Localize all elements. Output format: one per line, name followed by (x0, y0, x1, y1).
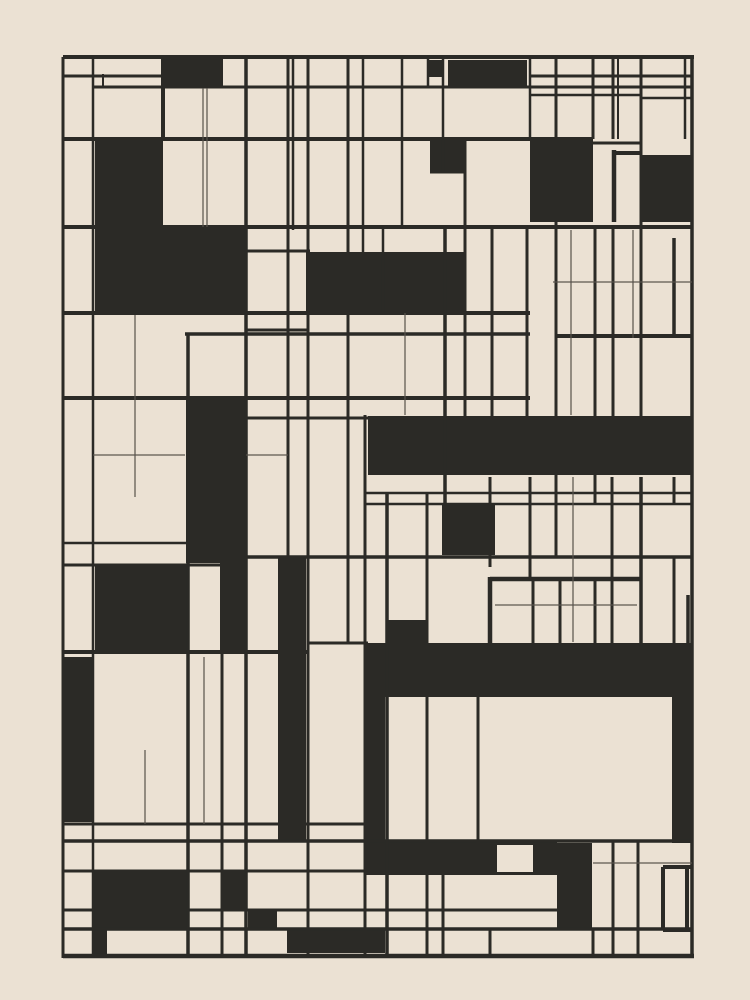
black-mass (557, 843, 592, 929)
grid-hline (614, 151, 641, 155)
grid-vline (529, 57, 532, 139)
grid-vline (529, 477, 532, 577)
thin-vline (632, 230, 633, 338)
grid-vline (592, 57, 595, 139)
thin-hline (93, 454, 185, 455)
grid-vline (673, 557, 676, 647)
grid-vline (442, 57, 445, 172)
black-mass (186, 400, 247, 563)
grid-vline (382, 227, 385, 313)
black-mass (367, 643, 692, 697)
grid-hline (593, 142, 641, 145)
grid-hline (185, 332, 530, 336)
black-mass (95, 565, 187, 652)
grid-vline (102, 74, 104, 88)
grid-hline (63, 870, 497, 873)
grid-hline (63, 75, 163, 78)
grid-vline (686, 595, 690, 647)
grid-vline (690, 57, 694, 958)
grid-hline (246, 555, 692, 559)
grid-vline (186, 333, 190, 955)
grid-vline (307, 57, 310, 955)
grid-vline (488, 577, 493, 647)
grid-hline (63, 909, 557, 912)
black-mass (163, 228, 247, 313)
black-mass (278, 557, 306, 842)
grid-vline (594, 227, 597, 505)
grid-hline (63, 55, 694, 59)
grid-vline (489, 477, 492, 567)
grid-hline (63, 311, 530, 315)
grid-vline (639, 477, 643, 647)
grid-hline (63, 927, 692, 931)
thin-vline (404, 313, 405, 415)
thin-hline (553, 281, 692, 282)
grid-vline (364, 415, 367, 955)
black-mass (248, 910, 277, 929)
grid-vline (287, 57, 290, 557)
grid-vline (443, 227, 447, 505)
grid-vline (592, 929, 595, 955)
grid-vline (637, 841, 640, 955)
grid-hline (246, 250, 310, 253)
black-mass (220, 563, 247, 652)
grid-vline (362, 57, 365, 252)
grid-vline (489, 929, 492, 955)
grid-vline (673, 477, 676, 505)
black-mass (163, 57, 223, 87)
grid-vline (464, 139, 467, 418)
grid-vline (442, 841, 445, 955)
grid-hline (63, 954, 694, 959)
black-mass (93, 872, 187, 928)
grid-vline (292, 57, 295, 230)
grid-hline (63, 137, 593, 141)
grid-vline (426, 493, 429, 955)
abstract-artwork-frame (0, 0, 750, 1000)
grid-vline (640, 57, 643, 418)
thin-vline (144, 750, 145, 824)
grid-hline (430, 171, 465, 174)
black-mass (530, 139, 593, 222)
grid-hline (63, 225, 692, 229)
grid-hline (93, 86, 692, 89)
grid-hline (63, 823, 365, 826)
black-mass (387, 620, 428, 643)
grid-vline (401, 57, 404, 227)
grid-vline (612, 150, 617, 222)
grid-hline (557, 334, 692, 338)
black-mass (223, 872, 247, 910)
grid-hline (246, 329, 308, 332)
thin-hline (246, 454, 288, 455)
black-mass (63, 657, 93, 822)
black-mass (672, 697, 692, 843)
black-mass (368, 416, 692, 475)
grid-vline (427, 57, 430, 88)
grid-vline (611, 477, 614, 647)
grid-hline (63, 542, 188, 545)
grid-vline (161, 57, 165, 140)
grid-vline (672, 238, 676, 338)
grid-vline (612, 57, 615, 139)
grid-vline (347, 57, 350, 643)
grid-vline (477, 697, 480, 843)
thin-vline (202, 88, 203, 227)
grid-vline (532, 577, 535, 647)
grid-hline (490, 577, 640, 582)
grid-vline (62, 57, 65, 958)
artwork-canvas (0, 0, 750, 1000)
grid-vline (685, 867, 689, 930)
grid-vline (491, 227, 494, 418)
grid-hline (63, 650, 308, 654)
grid-vline (385, 493, 389, 955)
thin-vline (203, 657, 204, 824)
grid-vline (559, 577, 562, 647)
grid-vline (617, 57, 619, 139)
grid-vline (92, 57, 95, 958)
black-mass (448, 60, 527, 87)
grid-vline (526, 227, 529, 418)
grid-hline (530, 94, 641, 97)
black-mass (442, 505, 495, 555)
grid-vline (612, 841, 615, 955)
thin-vline (134, 315, 135, 497)
grid-hline (530, 75, 692, 78)
grid-hline (63, 839, 692, 843)
thin-vline (570, 230, 571, 415)
cream-window (497, 845, 533, 872)
black-mass (428, 60, 443, 77)
grid-vline (594, 577, 597, 647)
grid-vline (684, 57, 687, 139)
black-mass (430, 139, 465, 172)
black-mass (640, 155, 692, 222)
grid-vline (661, 867, 665, 930)
grid-vline (612, 227, 615, 418)
grid-vline (221, 652, 224, 955)
grid-hline (308, 642, 368, 645)
grid-hline (63, 564, 246, 567)
black-mass (306, 252, 465, 313)
thin-hline (593, 862, 692, 863)
black-mass (93, 928, 107, 955)
thin-vline (206, 88, 207, 227)
black-mass (287, 929, 385, 953)
grid-hline (63, 396, 530, 400)
grid-vline (555, 57, 558, 557)
grid-vline (244, 57, 248, 955)
thin-hline (495, 604, 637, 605)
thin-vline (572, 477, 573, 642)
